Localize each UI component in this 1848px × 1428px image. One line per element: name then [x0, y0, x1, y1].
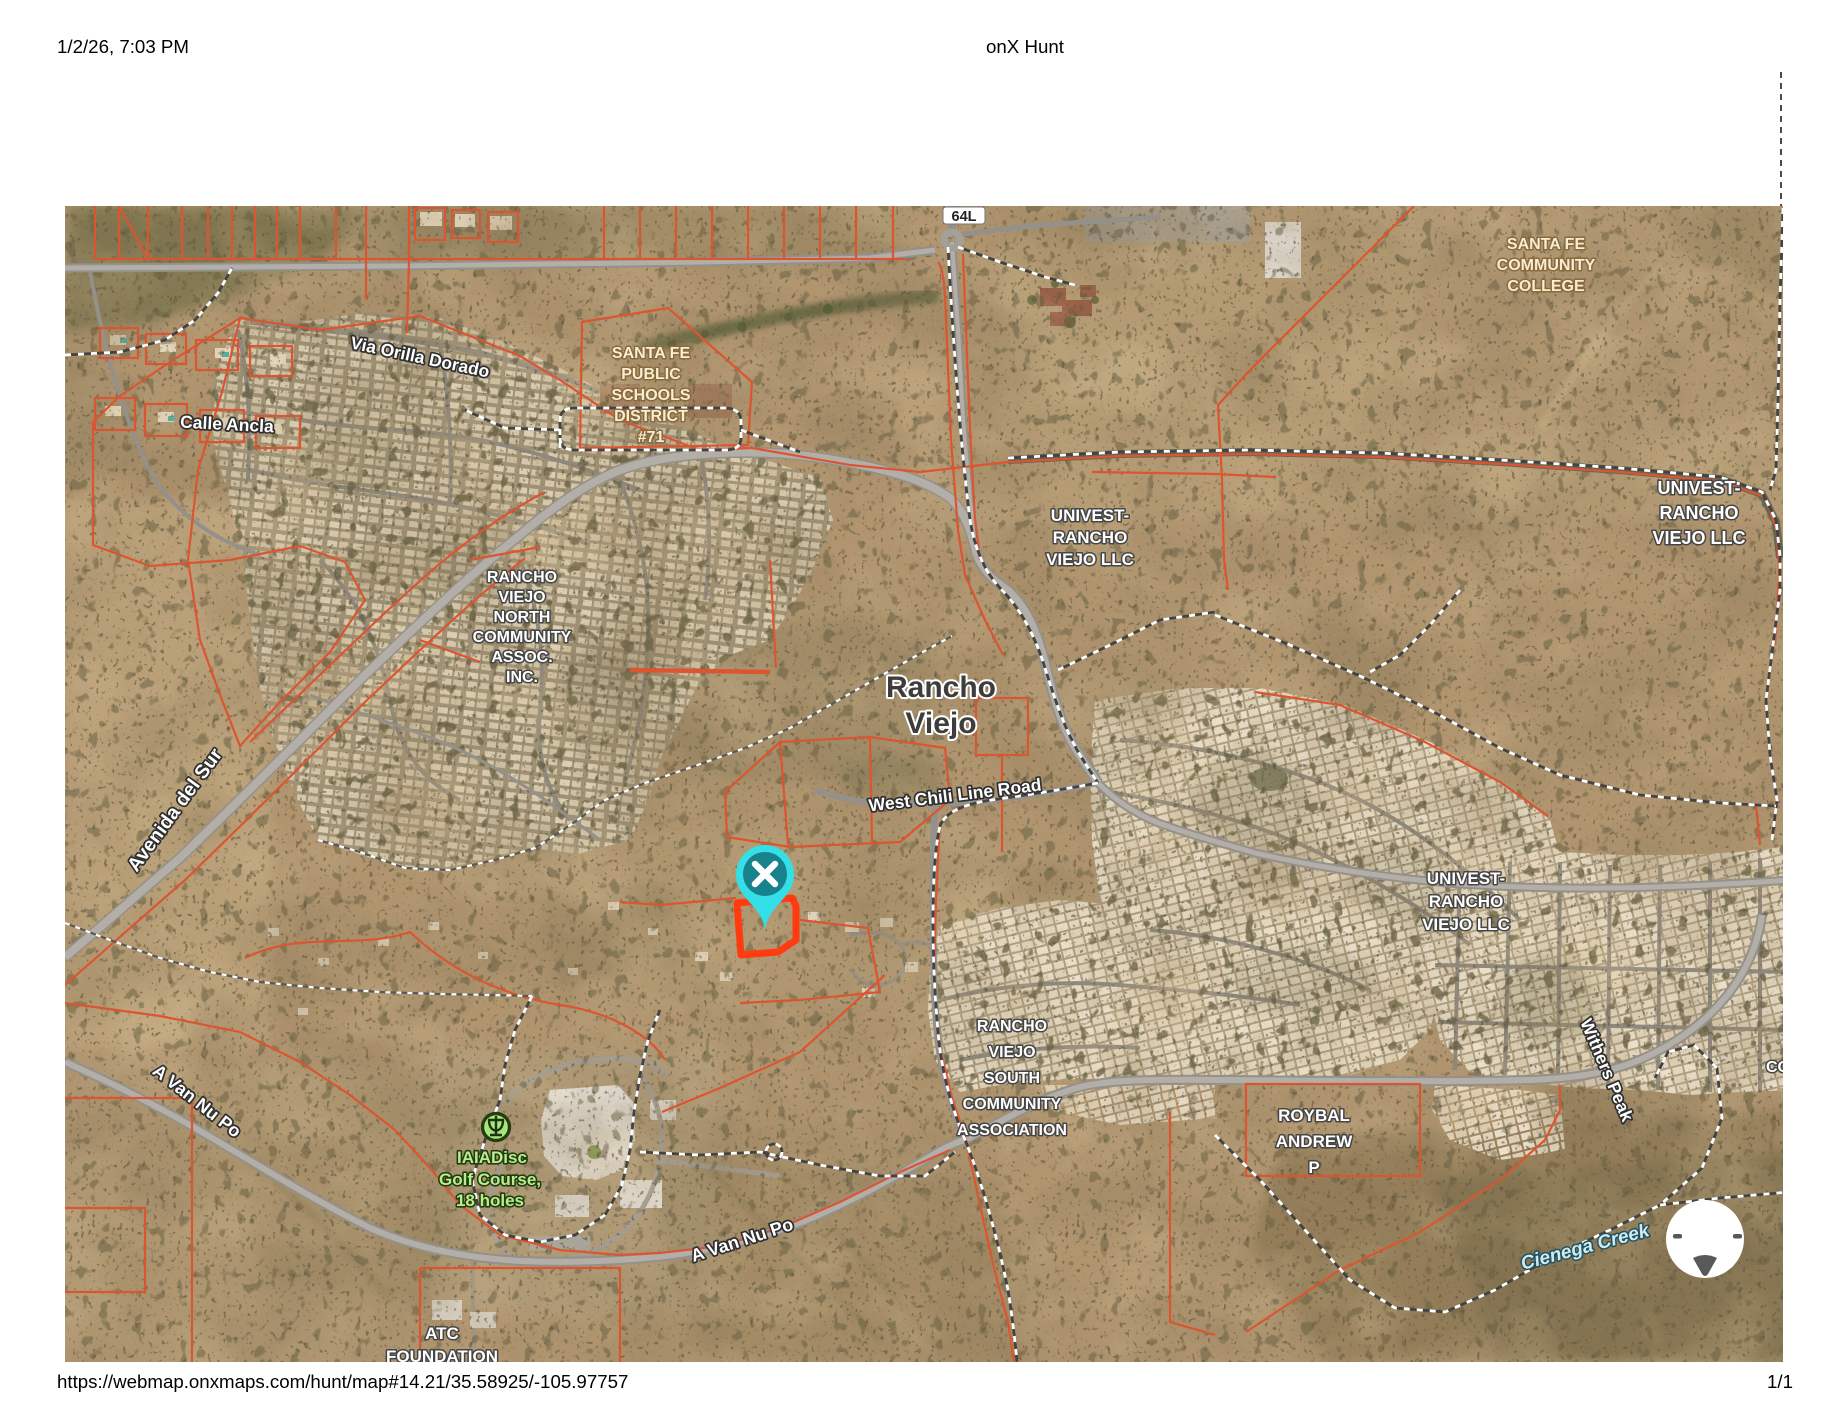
- svg-text:Rancho: Rancho: [886, 671, 996, 704]
- svg-text:VIEJO LLC: VIEJO LLC: [1422, 915, 1510, 934]
- svg-text:ATC: ATC: [425, 1324, 459, 1343]
- svg-text:#71: #71: [638, 429, 665, 446]
- svg-text:ROYBAL: ROYBAL: [1278, 1106, 1350, 1125]
- svg-text:18 holes: 18 holes: [456, 1191, 524, 1210]
- svg-text:RANCHO: RANCHO: [487, 569, 557, 586]
- svg-text:SOUTH: SOUTH: [984, 1070, 1040, 1087]
- svg-text:SCHOOLS: SCHOOLS: [611, 387, 690, 404]
- svg-text:UNIVEST-: UNIVEST-: [1657, 478, 1740, 498]
- svg-text:ASSOCIATION: ASSOCIATION: [957, 1122, 1067, 1139]
- svg-text:NORTH: NORTH: [494, 609, 551, 626]
- svg-text:FOUNDATION: FOUNDATION: [386, 1347, 498, 1362]
- svg-text:64L: 64L: [952, 209, 977, 225]
- svg-text:RANCHO: RANCHO: [1660, 503, 1739, 523]
- svg-text:VIEJO: VIEJO: [988, 1044, 1035, 1061]
- svg-text:Viejo: Viejo: [905, 707, 976, 740]
- svg-text:SANTA FE: SANTA FE: [612, 345, 691, 362]
- svg-text:COMMUNITY: COMMUNITY: [963, 1096, 1062, 1113]
- svg-text:VIEJO LLC: VIEJO LLC: [1652, 528, 1745, 548]
- svg-text:RANCHO: RANCHO: [1429, 892, 1504, 911]
- svg-text:CO: CO: [1766, 1059, 1783, 1076]
- svg-text:P: P: [1308, 1158, 1319, 1177]
- svg-text:COLLEGE: COLLEGE: [1507, 278, 1585, 295]
- svg-text:VIEJO: VIEJO: [498, 589, 545, 606]
- svg-text:ANDREW: ANDREW: [1276, 1132, 1353, 1151]
- svg-text:COMMUNITY: COMMUNITY: [473, 629, 572, 646]
- svg-text:RANCHO: RANCHO: [977, 1018, 1047, 1035]
- svg-text:UNIVEST-: UNIVEST-: [1051, 506, 1129, 525]
- svg-text:DISTRICT: DISTRICT: [614, 408, 688, 425]
- svg-text:VIEJO LLC: VIEJO LLC: [1046, 550, 1134, 569]
- svg-text:Golf Course,: Golf Course,: [439, 1170, 541, 1189]
- svg-text:RANCHO: RANCHO: [1053, 528, 1128, 547]
- svg-text:COMMUNITY: COMMUNITY: [1497, 257, 1596, 274]
- svg-text:PUBLIC: PUBLIC: [621, 366, 681, 383]
- svg-text:IAIADisc: IAIADisc: [457, 1148, 527, 1167]
- svg-text:SANTA FE: SANTA FE: [1507, 236, 1586, 253]
- svg-text:UNIVEST-: UNIVEST-: [1427, 869, 1505, 888]
- svg-text:ASSOC.: ASSOC.: [491, 649, 552, 666]
- svg-text:INC.: INC.: [506, 669, 538, 686]
